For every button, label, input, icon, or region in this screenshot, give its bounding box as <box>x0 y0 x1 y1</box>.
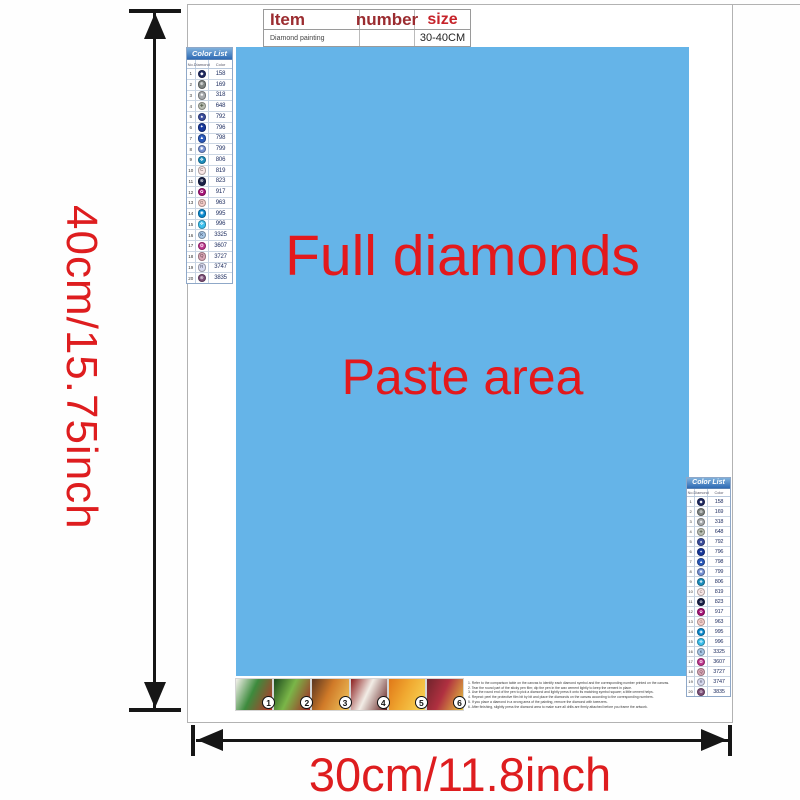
diamond-cell: ⊗ <box>695 597 708 606</box>
color-list-column-headers: No. Diamond Color <box>187 60 232 69</box>
color-list-row: 14◉995 <box>687 627 730 637</box>
diamond-color-swatch-icon: ✦ <box>198 123 207 132</box>
instructions-text: 1. Refer to the comparison table on the … <box>468 681 723 709</box>
dmc-color-code: 796 <box>209 123 232 133</box>
dmc-color-code: 823 <box>209 177 232 187</box>
row-number: 6 <box>687 547 695 556</box>
dmc-color-code: 792 <box>708 537 730 546</box>
dmc-color-code: 158 <box>708 497 730 506</box>
diamond-cell: ❖ <box>695 577 708 586</box>
row-number: 5 <box>687 537 695 546</box>
color-list-rows: 1◆1582⊕1693♣3184✚6485♠7926✦7967▲7988✱799… <box>187 69 232 283</box>
height-dimension-label: 40cm/15.75inch <box>56 205 106 530</box>
step-number-badge: 3 <box>339 696 352 709</box>
step-thumbnail: 4 <box>350 678 388 711</box>
color-list-row: 2⊕169 <box>687 507 730 517</box>
dmc-color-code: 169 <box>209 80 232 90</box>
top-edge-line <box>732 4 800 5</box>
diamond-color-swatch-icon: ⊗ <box>697 598 705 606</box>
diamond-cell: ✦ <box>695 547 708 556</box>
color-list-row: 11⊗823 <box>187 177 232 188</box>
row-number: 7 <box>687 557 695 566</box>
color-list-row: 12✿917 <box>687 607 730 617</box>
row-number: 18 <box>687 667 695 676</box>
dmc-color-code: 995 <box>209 209 232 219</box>
diamond-cell: ❂ <box>196 241 210 251</box>
row-number: 10 <box>687 587 695 596</box>
color-list-row: 17❂3607 <box>687 657 730 667</box>
diamond-cell: ❖ <box>196 155 210 165</box>
diamond-cell: C <box>196 166 210 176</box>
diamond-cell: R <box>196 263 210 273</box>
dmc-color-code: 318 <box>708 517 730 526</box>
item-table-header-row: Item number size <box>264 10 470 30</box>
product-spec-image: Item number size Diamond painting 30-40C… <box>0 0 800 800</box>
row-number: 2 <box>687 507 695 516</box>
dmc-color-code: 806 <box>209 155 232 165</box>
diamond-color-swatch-icon: ✜ <box>198 220 207 229</box>
diamond-cell: ◆ <box>196 69 210 79</box>
row-number: 8 <box>687 567 695 576</box>
color-list-rows: 1◆1582⊕1693♣3184✚6485♠7926✦7967▲7988✱799… <box>687 497 730 696</box>
row-number: 11 <box>187 177 196 187</box>
color-list-row: 18Q3727 <box>687 667 730 677</box>
color-list-row: 8✱799 <box>687 567 730 577</box>
row-number: 17 <box>687 657 695 666</box>
diamond-cell: C <box>695 587 708 596</box>
diamond-color-swatch-icon: ✱ <box>697 568 705 576</box>
diamond-cell: K <box>695 647 708 656</box>
diamond-color-swatch-icon: ❖ <box>697 578 705 586</box>
row-number: 7 <box>187 134 196 144</box>
size-header: size <box>415 10 470 29</box>
dmc-color-code: 963 <box>708 617 730 626</box>
step-number-badge: 4 <box>377 696 390 709</box>
dmc-color-code: 3727 <box>708 667 730 676</box>
diamond-color-swatch-icon: Q <box>198 252 207 261</box>
diamond-color-swatch-icon: ✱ <box>198 145 207 154</box>
row-number: 5 <box>187 112 196 122</box>
color-list-row: 1◆158 <box>687 497 730 507</box>
row-number: 15 <box>687 637 695 646</box>
paste-area-title-line1: Full diamonds <box>236 223 689 289</box>
dmc-color-code: 798 <box>708 557 730 566</box>
color-list-row: 13G963 <box>187 198 232 209</box>
row-number: 14 <box>687 627 695 636</box>
row-number: 12 <box>687 607 695 616</box>
diamond-color-swatch-icon: ▲ <box>198 134 207 143</box>
color-list-row: 16K3325 <box>187 230 232 241</box>
color-list-row: 20⊛3835 <box>187 273 232 283</box>
number-header: number <box>360 10 415 29</box>
color-list-row: 15✜996 <box>187 220 232 231</box>
row-number: 16 <box>687 647 695 656</box>
diamond-cell: ✜ <box>695 637 708 646</box>
width-arrow-right-cap <box>728 725 732 756</box>
color-list-row: 3♣318 <box>187 91 232 102</box>
row-number: 4 <box>687 527 695 536</box>
row-number: 9 <box>187 155 196 165</box>
diamond-cell: ◉ <box>695 627 708 636</box>
number-value <box>360 30 415 46</box>
color-list-row: 2⊕169 <box>187 80 232 91</box>
row-number: 9 <box>687 577 695 586</box>
row-number: 13 <box>187 198 196 208</box>
row-number: 2 <box>187 80 196 90</box>
row-number: 3 <box>687 517 695 526</box>
diamond-cell: ♠ <box>695 537 708 546</box>
color-list-row: 8✱799 <box>187 144 232 155</box>
diamond-color-swatch-icon: ◆ <box>198 70 207 79</box>
row-number: 8 <box>187 144 196 154</box>
item-info-table: Item number size Diamond painting 30-40C… <box>263 9 471 47</box>
row-number: 20 <box>187 273 196 283</box>
diamond-cell: ✿ <box>196 187 210 197</box>
diamond-color-swatch-icon: ⊛ <box>198 274 207 283</box>
diamond-color-swatch-icon: G <box>198 199 207 208</box>
diamond-color-swatch-icon: ❂ <box>697 658 705 666</box>
dmc-color-code: 796 <box>708 547 730 556</box>
row-number: 1 <box>187 69 196 79</box>
diamond-cell: ♣ <box>695 517 708 526</box>
color-list-row: 4✚648 <box>687 527 730 537</box>
step-thumbnail: 3 <box>311 678 349 711</box>
dmc-color-code: 917 <box>209 187 232 197</box>
diamond-color-swatch-icon: ✚ <box>697 528 705 536</box>
color-list-row: 1◆158 <box>187 69 232 80</box>
dmc-color-code: 3747 <box>209 263 232 273</box>
step-number-badge: 5 <box>415 696 428 709</box>
row-number: 12 <box>187 187 196 197</box>
color-list-row: 7▲798 <box>687 557 730 567</box>
col-color: Color <box>209 60 232 68</box>
diamond-color-swatch-icon: G <box>697 618 705 626</box>
diamond-color-swatch-icon: ✦ <box>697 548 705 556</box>
dmc-color-code: 3325 <box>209 230 232 240</box>
dmc-color-code: 648 <box>209 101 232 111</box>
color-list-row: 10C819 <box>187 166 232 177</box>
diamond-cell: ❂ <box>695 657 708 666</box>
dmc-color-code: 819 <box>708 587 730 596</box>
diamond-cell: K <box>196 230 210 240</box>
step-thumbnail: 2 <box>273 678 311 711</box>
diamond-color-swatch-icon: ♣ <box>697 518 705 526</box>
color-list-row: 17❂3607 <box>187 241 232 252</box>
diamond-cell: ♣ <box>196 91 210 101</box>
diamond-color-swatch-icon: ❂ <box>198 242 207 251</box>
step-thumbnails: 123456 <box>235 678 464 711</box>
color-list-column-headers: No. Diamond Color <box>687 489 730 497</box>
col-diamond: Diamond <box>196 60 210 68</box>
diamond-cell: ✱ <box>695 567 708 576</box>
dmc-color-code: 823 <box>708 597 730 606</box>
dmc-color-code: 798 <box>209 134 232 144</box>
dmc-color-code: 792 <box>209 112 232 122</box>
diamond-cell: ✚ <box>196 101 210 111</box>
diamond-color-swatch-icon: C <box>198 166 207 175</box>
diamond-cell: G <box>196 198 210 208</box>
diamond-color-swatch-icon: ◉ <box>198 209 207 218</box>
diamond-color-swatch-icon: ✿ <box>198 188 207 197</box>
dmc-color-code: 318 <box>209 91 232 101</box>
height-dimension-line <box>153 13 156 710</box>
size-value: 30-40CM <box>415 30 470 46</box>
dmc-color-code: 917 <box>708 607 730 616</box>
color-list-row: 5♠792 <box>187 112 232 123</box>
row-number: 6 <box>187 123 196 133</box>
instruction-line: 6. After finishing, slightly press the d… <box>468 705 723 710</box>
dmc-color-code: 648 <box>708 527 730 536</box>
dmc-color-code: 963 <box>209 198 232 208</box>
diamond-color-swatch-icon: ❖ <box>198 156 207 165</box>
color-list-right: Color List No. Diamond Color 1◆1582⊕1693… <box>686 477 731 697</box>
row-number: 13 <box>687 617 695 626</box>
row-number: 3 <box>187 91 196 101</box>
dmc-color-code: 799 <box>209 144 232 154</box>
diamond-color-swatch-icon: ♠ <box>697 538 705 546</box>
row-number: 11 <box>687 597 695 606</box>
diamond-cell: Q <box>695 667 708 676</box>
dmc-color-code: 3607 <box>209 241 232 251</box>
step-thumbnail: 1 <box>235 678 273 711</box>
diamond-color-swatch-icon: Q <box>697 668 705 676</box>
dmc-color-code: 3325 <box>708 647 730 656</box>
step-thumbnail: 6 <box>426 678 464 711</box>
item-table-data-row: Diamond painting 30-40CM <box>264 30 470 46</box>
dmc-color-code: 169 <box>708 507 730 516</box>
color-list-row: 6✦796 <box>687 547 730 557</box>
diamond-color-swatch-icon: ♠ <box>198 113 207 122</box>
diamond-color-swatch-icon: ✿ <box>697 608 705 616</box>
diamond-color-swatch-icon: ◉ <box>697 628 705 636</box>
dmc-color-code: 158 <box>209 69 232 79</box>
width-dimension-line <box>196 739 728 742</box>
row-number: 15 <box>187 220 196 230</box>
dmc-color-code: 996 <box>708 637 730 646</box>
diamond-cell: ♠ <box>196 112 210 122</box>
item-value: Diamond painting <box>264 30 360 46</box>
dmc-color-code: 3727 <box>209 252 232 262</box>
color-list-row: 18Q3727 <box>187 252 232 263</box>
diamond-cell: ▲ <box>196 134 210 144</box>
color-list-row: 4✚648 <box>187 101 232 112</box>
color-list-row: 10C819 <box>687 587 730 597</box>
dmc-color-code: 3607 <box>708 657 730 666</box>
color-list-row: 6✦796 <box>187 123 232 134</box>
arrowhead-down-icon <box>144 682 166 708</box>
row-number: 4 <box>187 101 196 111</box>
color-list-row: 9❖806 <box>687 577 730 587</box>
diamond-cell: ▲ <box>695 557 708 566</box>
diamond-color-swatch-icon: C <box>697 588 705 596</box>
color-list-title: Color List <box>687 478 730 489</box>
dmc-color-code: 799 <box>708 567 730 576</box>
diamond-cell: ⊕ <box>196 80 210 90</box>
diamond-color-swatch-icon: K <box>697 648 705 656</box>
color-list-row: 9❖806 <box>187 155 232 166</box>
diamond-cell: Q <box>196 252 210 262</box>
diamond-cell: ✚ <box>695 527 708 536</box>
diamond-cell: ◉ <box>196 209 210 219</box>
color-list-row: 15✜996 <box>687 637 730 647</box>
row-number: 17 <box>187 241 196 251</box>
color-list-left: Color List No. Diamond Color 1◆1582⊕1693… <box>186 47 233 284</box>
diamond-cell: ⊛ <box>196 273 210 283</box>
diamond-cell: G <box>695 617 708 626</box>
color-list-row: 3♣318 <box>687 517 730 527</box>
diamond-color-swatch-icon: R <box>198 263 207 272</box>
dmc-color-code: 3835 <box>209 273 232 283</box>
color-list-row: 7▲798 <box>187 134 232 145</box>
col-diamond: Diamond <box>695 489 708 496</box>
diamond-color-swatch-icon: ♣ <box>198 91 207 100</box>
color-list-row: 16K3325 <box>687 647 730 657</box>
diamond-cell: ⊗ <box>196 177 210 187</box>
item-header: Item <box>264 10 360 29</box>
diamond-color-swatch-icon: ▲ <box>697 558 705 566</box>
diamond-cell: ⊕ <box>695 507 708 516</box>
color-list-row: 5♠792 <box>687 537 730 547</box>
color-list-row: 13G963 <box>687 617 730 627</box>
paste-area-title-line2: Paste area <box>236 348 689 406</box>
color-list-row: 14◉995 <box>187 209 232 220</box>
row-number: 1 <box>687 497 695 506</box>
step-thumbnail: 5 <box>388 678 426 711</box>
color-list-row: 12✿917 <box>187 187 232 198</box>
diamond-color-swatch-icon: ⊕ <box>198 80 207 89</box>
diamond-color-swatch-icon: ⊕ <box>697 508 705 516</box>
row-number: 16 <box>187 230 196 240</box>
diamond-cell: ✱ <box>196 144 210 154</box>
color-list-title: Color List <box>187 48 232 60</box>
dmc-color-code: 995 <box>708 627 730 636</box>
dmc-color-code: 819 <box>209 166 232 176</box>
color-list-row: 11⊗823 <box>687 597 730 607</box>
diamond-color-swatch-icon: ◆ <box>697 498 705 506</box>
diamond-color-swatch-icon: ⊗ <box>198 177 207 186</box>
dmc-color-code: 996 <box>209 220 232 230</box>
height-arrow-bottom-cap <box>129 708 181 712</box>
diamond-cell: ◆ <box>695 497 708 506</box>
col-color: Color <box>708 489 730 496</box>
row-number: 19 <box>187 263 196 273</box>
dmc-color-code: 806 <box>708 577 730 586</box>
diamond-cell: ✿ <box>695 607 708 616</box>
diamond-color-swatch-icon: ✚ <box>198 102 207 111</box>
row-number: 18 <box>187 252 196 262</box>
diamond-cell: ✦ <box>196 123 210 133</box>
row-number: 14 <box>187 209 196 219</box>
color-list-row: 19R3747 <box>187 263 232 274</box>
row-number: 10 <box>187 166 196 176</box>
diamond-color-swatch-icon: ✜ <box>697 638 705 646</box>
diamond-color-swatch-icon: K <box>198 231 207 240</box>
diamond-cell: ✜ <box>196 220 210 230</box>
width-dimension-label: 30cm/11.8inch <box>195 747 725 800</box>
step-number-badge: 6 <box>453 696 466 709</box>
